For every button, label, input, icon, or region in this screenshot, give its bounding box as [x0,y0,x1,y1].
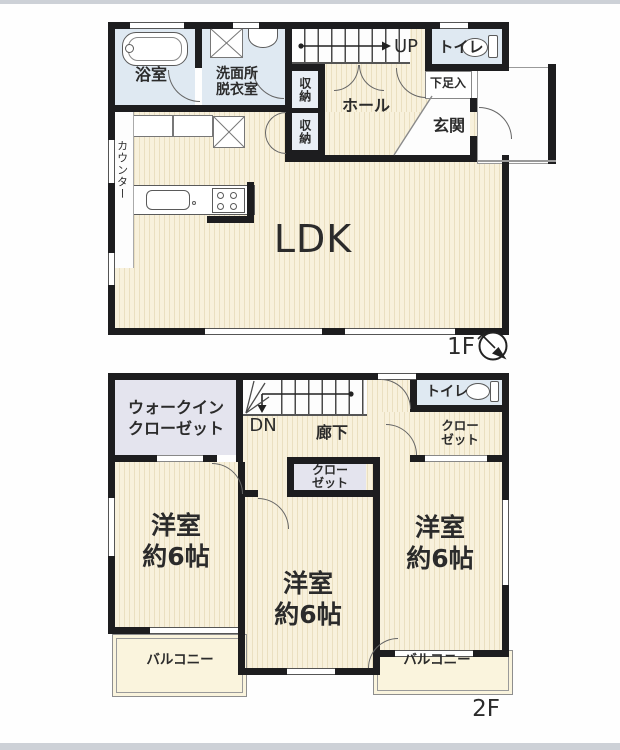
refrigerator-space-icon [213,116,245,148]
wall [203,455,217,462]
wall [318,64,325,157]
balcony-right-label: バルコニー [392,653,482,669]
kitchen-counter-left [133,115,173,137]
burner [217,192,224,199]
wall [108,373,509,380]
room-label-toilet-2f: トイレ [422,384,472,400]
wall [195,22,202,68]
wall [285,155,477,162]
floor1-label: 1F [443,334,479,360]
room-label-left: 洋室 約6帖 [130,510,222,573]
room-label-counter: カウンター [115,130,128,210]
room-label-hall: ホール [338,97,394,115]
washing-machine-icon [210,28,243,58]
wall [470,98,477,112]
room-label-bath: 浴室 [126,66,176,84]
wall [285,64,318,71]
window [150,627,238,634]
window [108,140,115,183]
window [130,22,184,29]
kitchen-sink-icon [146,190,190,210]
window [108,253,115,285]
toilet-tank-2f [490,381,499,402]
floor-plan: 浴室 洗面所 脱衣室 収納 収納 UP トイレ 下足入 玄関 ホール カウンター… [0,0,620,750]
bath-faucet-icon [125,44,134,53]
room-label-middle: 洋室 約6帖 [262,568,354,631]
burner [217,203,224,210]
room-label-storage1: 収納 [297,73,311,107]
sliding-door [425,455,487,462]
room-label-right: 洋室 約6帖 [394,512,486,575]
window [205,328,322,335]
bathtub-inner [128,37,182,61]
room-label-ldk: LDK [268,218,358,262]
wall [425,64,509,71]
wall [236,380,243,462]
wall [285,22,292,157]
room-label-closet-middle: クロー ゼット [306,464,354,490]
room-label-storage2: 収納 [297,115,311,149]
stairs-2f-steps [269,380,367,415]
window [502,500,509,585]
wall [487,455,509,462]
wall [287,490,380,497]
floor2-label: 2F [468,696,504,722]
stairs-up-label: UP [388,37,424,58]
room-label-toilet-1f: トイレ [436,39,486,56]
toilet-tank-1f [488,35,498,58]
window [108,498,115,556]
wall [108,105,292,112]
room-label-corridor: 廊下 [305,424,359,442]
stairs-down-label: DN [244,416,282,437]
window [233,22,259,29]
balcony-left-label: バルコニー [135,653,225,669]
wall [410,405,509,412]
porch-edge [477,160,556,162]
room-label-closet-right: クロー ゼット [434,419,486,448]
kitchen-faucet-dot [192,201,196,205]
page-edge-top [0,0,620,4]
wall [373,457,380,675]
window [287,668,335,675]
wall [285,108,318,113]
page-edge-bottom [0,743,620,750]
wall [548,64,556,164]
window [440,22,468,29]
room-label-entrance: 玄関 [424,117,474,135]
room-label-washroom: 洗面所 脱衣室 [206,66,268,98]
wall [410,455,425,462]
kitchen-counter-right [173,115,213,137]
wall [502,155,509,335]
sliding-door [157,455,203,462]
burner [230,203,237,210]
wall [470,136,477,162]
kitchen-peninsula-wall [207,216,254,223]
stove-icon [212,188,245,213]
wall [108,455,157,462]
burner [230,192,237,199]
compass-icon [478,331,507,360]
window [345,328,455,335]
room-label-shoebox: 下足入 [427,77,469,91]
room-label-wic: ウォークイン クローゼット [121,398,231,440]
